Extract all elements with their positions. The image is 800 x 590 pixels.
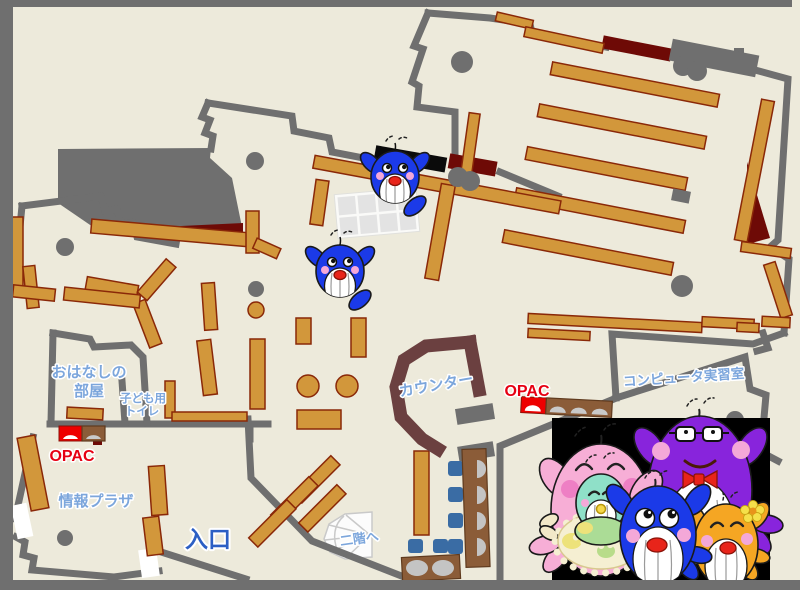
label-opac-left: OPAC (49, 448, 94, 465)
bookshelf (250, 339, 265, 409)
blanket-patch (577, 522, 593, 534)
label-storytelling-room-line2: 部屋 (74, 382, 104, 400)
desk (462, 449, 490, 568)
bookshelf (148, 466, 167, 516)
label-kids-toilet-line2: トイレ (125, 405, 160, 418)
library-floor-map: おはなしの 部屋 子ども用 トイレ OPAC 情報プラザ 入口 二階へ カウンタ… (0, 0, 800, 590)
round-table (336, 375, 358, 397)
spout (340, 237, 341, 245)
chair (448, 487, 463, 502)
round-table (297, 375, 319, 397)
spout (699, 409, 700, 417)
label-entrance: 入口 (185, 526, 231, 552)
spout (395, 143, 396, 151)
spout (655, 479, 656, 487)
frame-border-top (0, 0, 792, 7)
bookshelf (67, 407, 104, 420)
bookshelf (12, 217, 23, 289)
seat (406, 560, 428, 576)
round-table (248, 302, 264, 318)
pillar (671, 275, 693, 297)
label-opac-center: OPAC (504, 383, 549, 400)
bookshelf (172, 412, 247, 421)
bookshelf (737, 322, 759, 332)
chair (448, 539, 463, 554)
spout (601, 435, 602, 444)
pillar (56, 238, 74, 256)
pillar (246, 152, 264, 170)
chair (448, 461, 463, 476)
frame-border-left (0, 0, 13, 590)
bookshelf (297, 410, 341, 429)
pillar (687, 61, 707, 81)
floor-map-canvas: おはなしの 部屋 子ども用 トイレ OPAC 情報プラザ 入口 二階へ カウンタ… (0, 0, 800, 590)
pillar (248, 281, 264, 297)
bookshelf (351, 318, 366, 357)
chair (448, 513, 463, 528)
label-kids-toilet-line1: 子ども用 (120, 392, 166, 405)
bookshelf (762, 316, 790, 327)
frame-border-bottom (0, 580, 800, 590)
label-storytelling-room-line1: おはなしの (51, 364, 126, 381)
bookshelf (414, 451, 429, 535)
chair (433, 539, 448, 553)
chair (408, 539, 423, 553)
pillar (460, 171, 480, 191)
label-info-plaza: 情報プラザ (58, 492, 133, 510)
bookshelf (296, 318, 311, 344)
pillar (451, 51, 473, 73)
seat (432, 560, 454, 576)
pillar (57, 530, 73, 546)
opac-terminals-left (59, 426, 105, 441)
bookshelf (201, 283, 217, 331)
